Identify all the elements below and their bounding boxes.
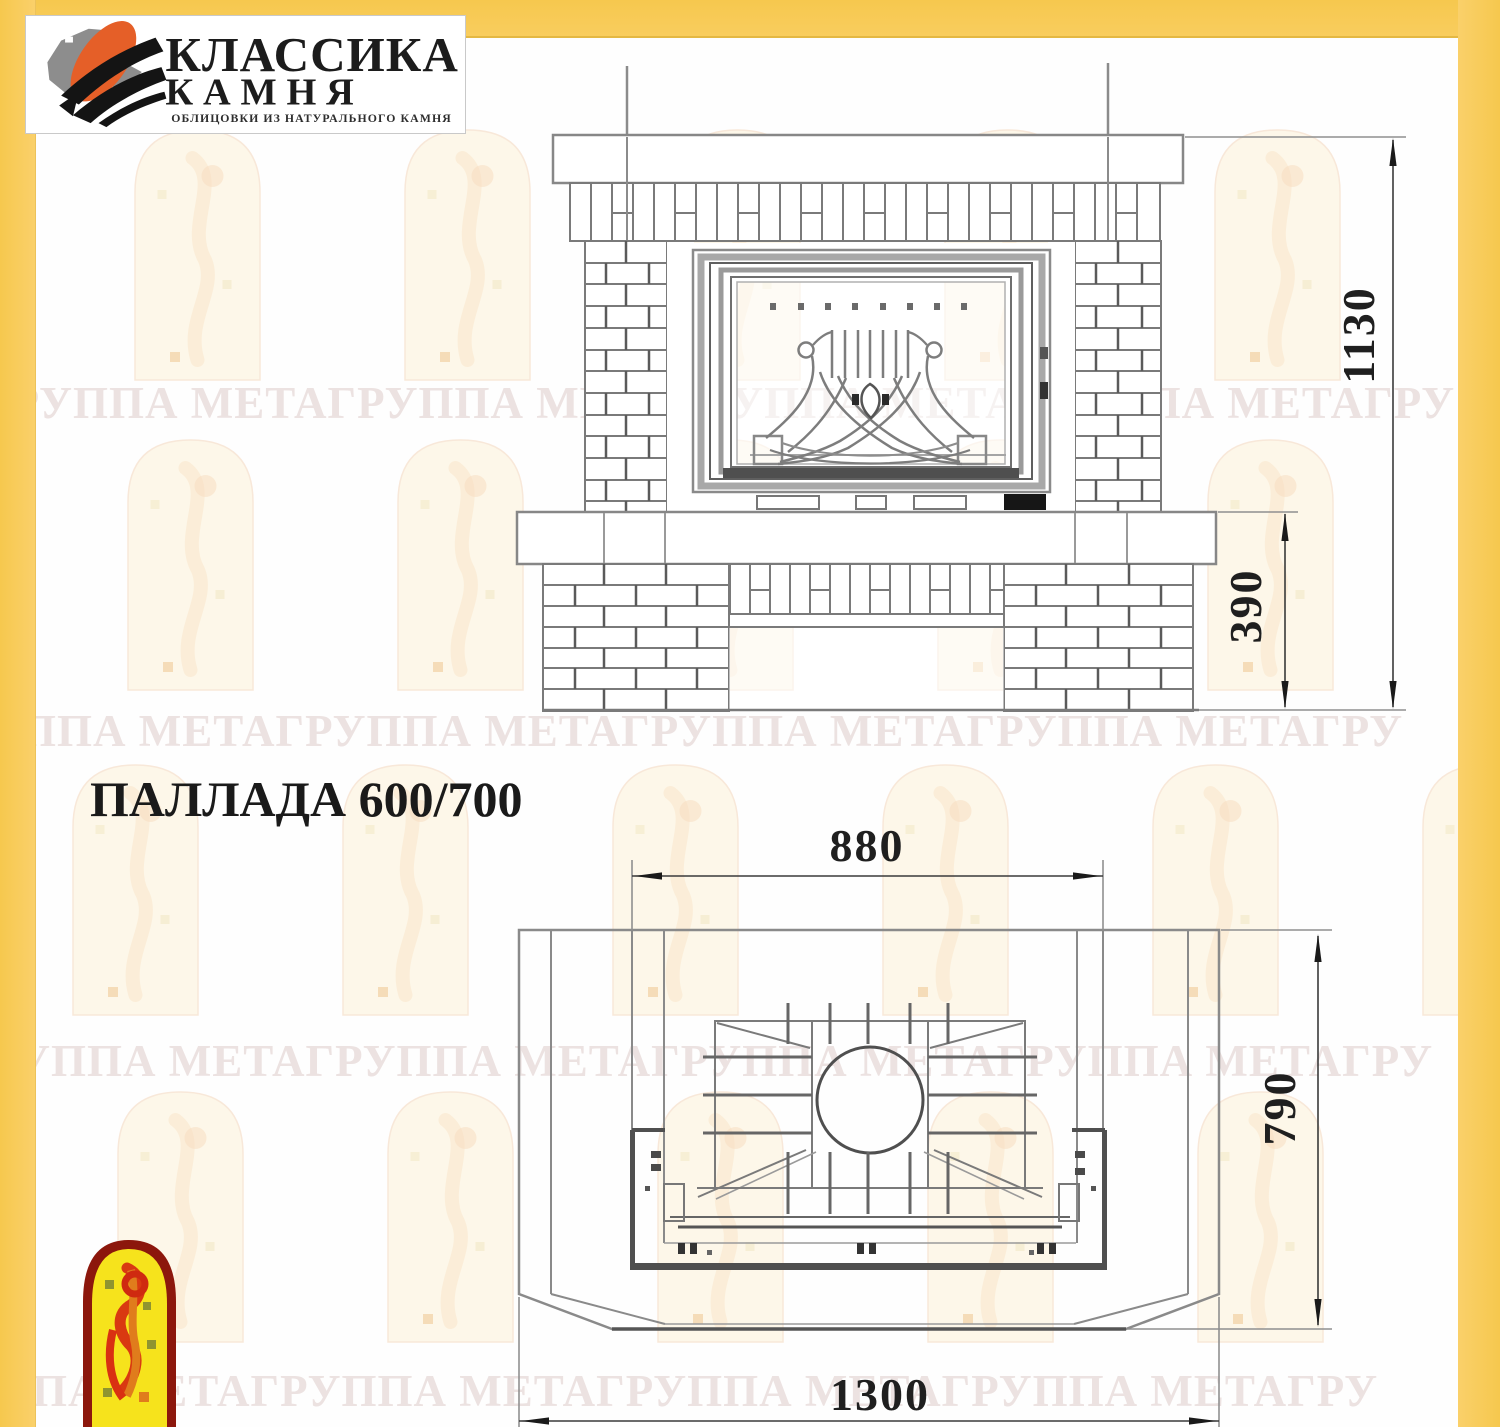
svg-text:КАМНЯ: КАМНЯ <box>165 71 363 113</box>
svg-text:880: 880 <box>830 820 905 871</box>
svg-text:1130: 1130 <box>1333 286 1384 383</box>
svg-text:1300: 1300 <box>830 1369 930 1420</box>
svg-text:390: 390 <box>1220 569 1271 644</box>
svg-text:790: 790 <box>1254 1071 1305 1146</box>
svg-text:ОБЛИЦОВКИ ИЗ НАТУРАЛЬНОГО КАМН: ОБЛИЦОВКИ ИЗ НАТУРАЛЬНОГО КАМНЯ <box>171 111 452 125</box>
